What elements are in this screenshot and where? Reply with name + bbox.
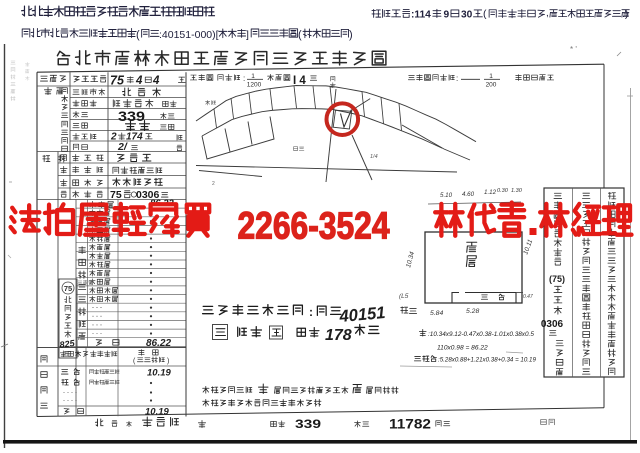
svg-text:5.84: 5.84 [430, 310, 443, 317]
svg-text:200: 200 [486, 82, 497, 89]
svg-text:* ': * ' [570, 45, 577, 54]
svg-text::: : [309, 305, 313, 319]
svg-text:4: 4 [135, 75, 143, 87]
svg-text:(75): (75) [549, 274, 565, 284]
svg-text:.): .) [622, 8, 628, 20]
svg-text::40151-000)[: :40151-000)[ [159, 29, 219, 41]
svg-text::: : [456, 74, 458, 83]
svg-text::: : [243, 74, 245, 83]
svg-text:4: 4 [152, 75, 160, 87]
svg-text:339: 339 [118, 109, 145, 124]
svg-text:75: 75 [110, 74, 125, 88]
svg-text:0306: 0306 [541, 319, 564, 330]
svg-text:10.19: 10.19 [147, 368, 171, 379]
svg-text:2266-3524: 2266-3524 [238, 206, 390, 248]
svg-text:11782: 11782 [389, 417, 431, 432]
svg-text:174: 174 [126, 132, 143, 143]
svg-text:178: 178 [325, 327, 352, 344]
svg-text:,: , [546, 8, 549, 19]
svg-text:2: 2 [110, 132, 117, 143]
svg-text:1.30: 1.30 [511, 188, 523, 194]
svg-text::10.34x9.12-0.47x0.38-1.01x0.3: :10.34x9.12-0.47x0.38-1.01x0.38x0.5 [428, 331, 534, 338]
svg-text:75: 75 [110, 189, 122, 201]
svg-text:4.60: 4.60 [462, 191, 475, 198]
svg-text:86.22: 86.22 [146, 338, 171, 349]
svg-text:75: 75 [64, 284, 72, 293]
svg-text:10.19: 10.19 [145, 407, 169, 418]
svg-text:0.30: 0.30 [497, 188, 509, 194]
svg-text:2: 2 [212, 181, 215, 187]
svg-text:1.12: 1.12 [484, 189, 497, 196]
svg-text:(: ( [136, 29, 140, 41]
svg-text:(: ( [483, 8, 487, 20]
svg-text:1/4: 1/4 [370, 154, 378, 160]
svg-text:]: ] [246, 29, 249, 41]
svg-text:5.28: 5.28 [466, 308, 479, 315]
svg-text:30: 30 [461, 10, 473, 21]
svg-text:9: 9 [444, 10, 450, 21]
svg-text:(: ( [298, 29, 302, 41]
svg-text:2/: 2/ [117, 141, 128, 153]
svg-text:339: 339 [295, 417, 321, 431]
svg-text:110x0.98 = 86.22: 110x0.98 = 86.22 [437, 345, 488, 352]
svg-text:): ) [349, 29, 353, 41]
svg-text:5.10: 5.10 [440, 192, 453, 199]
svg-text::114: :114 [411, 10, 431, 21]
svg-text::5.28x0.88+1.21x0.38+0.34 = 10: :5.28x0.88+1.21x0.38+0.34 = 10.19 [438, 357, 536, 364]
svg-text:): ) [167, 358, 169, 365]
svg-text:1: 1 [251, 73, 255, 80]
svg-text:1: 1 [489, 73, 493, 80]
svg-text:0.47: 0.47 [523, 294, 533, 300]
svg-text:1200: 1200 [247, 82, 262, 89]
svg-text:(L5: (L5 [399, 293, 409, 300]
